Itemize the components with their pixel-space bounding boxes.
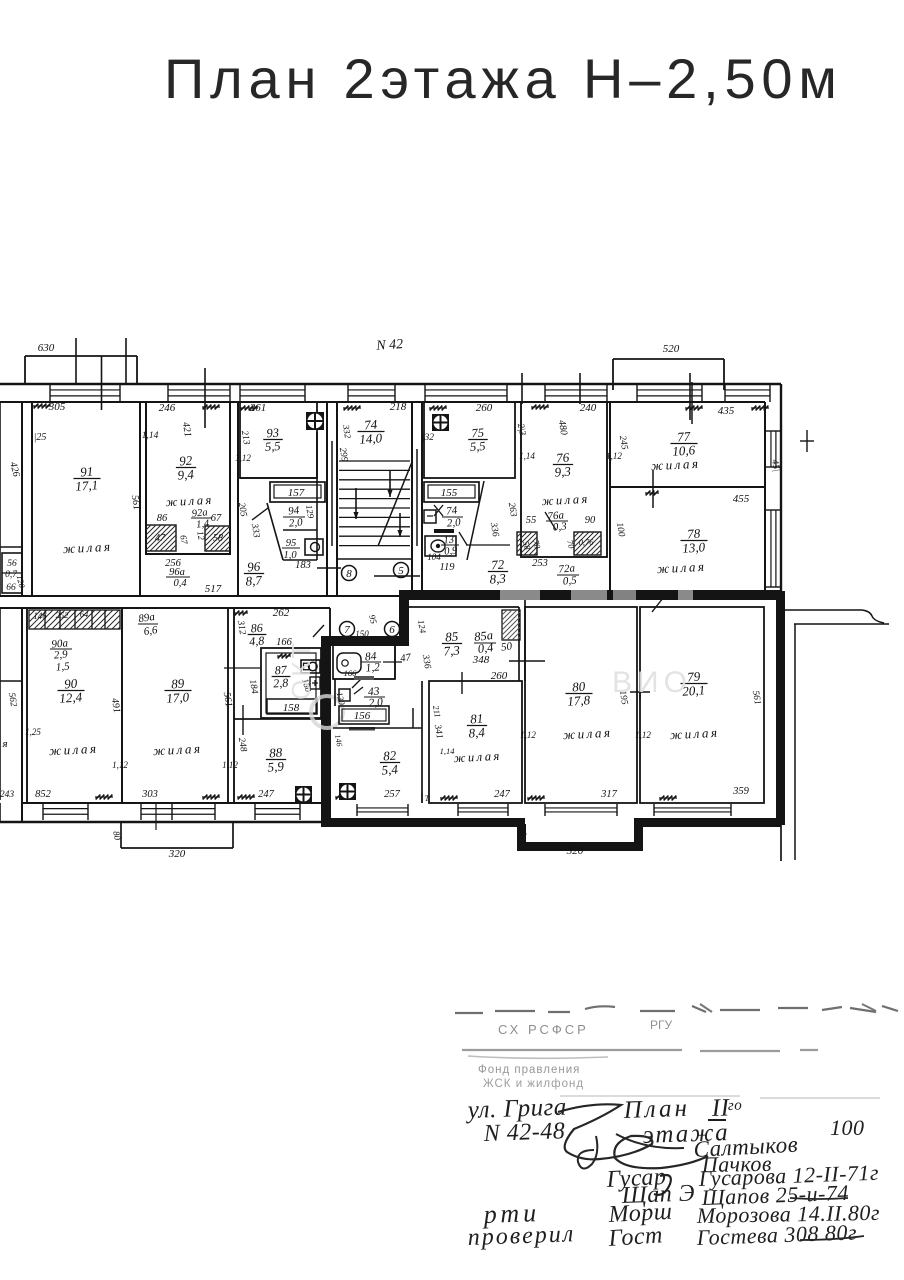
svg-text:ОКТ: ОКТ bbox=[286, 640, 316, 700]
svg-text:100: 100 bbox=[830, 1115, 865, 1140]
svg-text:5,5: 5,5 bbox=[469, 439, 486, 454]
svg-text:317: 317 bbox=[600, 789, 618, 800]
svg-text:320: 320 bbox=[566, 845, 584, 857]
svg-text:2,9: 2,9 bbox=[53, 648, 68, 661]
svg-text:435: 435 bbox=[718, 405, 735, 417]
svg-text:жилая: жилая bbox=[453, 749, 502, 765]
svg-text:67: 67 bbox=[211, 513, 222, 524]
svg-text:го: го bbox=[728, 1098, 743, 1114]
svg-text:517: 517 bbox=[205, 583, 222, 595]
svg-text:630: 630 bbox=[38, 342, 55, 354]
svg-text:155: 155 bbox=[441, 487, 458, 499]
svg-text:253: 253 bbox=[532, 558, 548, 569]
svg-text:156: 156 bbox=[354, 710, 371, 722]
svg-text:N 42: N 42 bbox=[375, 337, 404, 354]
svg-text:55: 55 bbox=[526, 515, 537, 526]
svg-text:86: 86 bbox=[157, 513, 168, 524]
svg-text:47: 47 bbox=[155, 533, 166, 544]
svg-text:ЖСК и жилфонд: ЖСК и жилфонд bbox=[483, 1078, 584, 1090]
svg-text:2,0: 2,0 bbox=[368, 696, 384, 709]
svg-text:1,12: 1,12 bbox=[112, 760, 128, 770]
svg-text:я: я bbox=[1, 738, 7, 750]
svg-text:359: 359 bbox=[732, 786, 750, 797]
svg-text:320: 320 bbox=[168, 848, 186, 860]
svg-text:64: 64 bbox=[80, 609, 89, 619]
svg-text:6: 6 bbox=[389, 624, 395, 636]
svg-text:247: 247 bbox=[494, 789, 511, 800]
svg-text:100: 100 bbox=[614, 522, 626, 538]
svg-text:2,0: 2,0 bbox=[446, 516, 461, 529]
svg-text:1,4: 1,4 bbox=[196, 518, 211, 530]
svg-text:4,8: 4,8 bbox=[249, 634, 265, 649]
svg-text:СХ РСФСР: СХ РСФСР bbox=[498, 1022, 589, 1037]
svg-text:7,3: 7,3 bbox=[443, 642, 461, 658]
svg-text:13,0: 13,0 bbox=[682, 539, 706, 556]
svg-text:проверил: проверил bbox=[467, 1221, 575, 1251]
svg-text:455: 455 bbox=[733, 493, 750, 505]
svg-text:0,3: 0,3 bbox=[552, 520, 567, 533]
svg-text:0,76: 0,76 bbox=[579, 537, 595, 547]
svg-text:1,5: 1,5 bbox=[55, 660, 70, 673]
svg-text:|32: |32 bbox=[422, 433, 434, 443]
svg-text:14,0: 14,0 bbox=[359, 430, 383, 447]
svg-text:129: 129 bbox=[304, 504, 316, 520]
svg-text:240: 240 bbox=[580, 402, 597, 414]
svg-text:8: 8 bbox=[346, 568, 352, 580]
svg-text:480: 480 bbox=[556, 419, 569, 436]
svg-text:17,1: 17,1 bbox=[75, 477, 99, 494]
svg-text:66: 66 bbox=[6, 583, 16, 593]
svg-text:1,25: 1,25 bbox=[25, 727, 41, 737]
svg-text:жилая: жилая bbox=[541, 492, 590, 508]
svg-text:336: 336 bbox=[420, 653, 433, 670]
svg-text:5,4: 5,4 bbox=[381, 761, 399, 777]
svg-text:260: 260 bbox=[476, 402, 493, 414]
svg-text:246: 246 bbox=[159, 402, 176, 414]
svg-text:67: 67 bbox=[178, 534, 189, 545]
svg-text:95: 95 bbox=[286, 538, 297, 549]
svg-text:562: 562 bbox=[6, 692, 18, 708]
svg-text:333: 333 bbox=[249, 522, 262, 539]
svg-text:жилая: жилая bbox=[563, 725, 613, 743]
svg-text:9,4: 9,4 bbox=[177, 466, 195, 482]
svg-text:243: 243 bbox=[0, 790, 14, 800]
svg-text:жилая: жилая bbox=[670, 725, 720, 743]
svg-text:30: 30 bbox=[517, 825, 529, 837]
svg-text:90: 90 bbox=[585, 515, 596, 526]
svg-text:491: 491 bbox=[109, 697, 122, 714]
svg-text:130: 130 bbox=[335, 691, 348, 706]
svg-text:5: 5 bbox=[398, 565, 404, 577]
svg-text:8,4: 8,4 bbox=[468, 724, 486, 740]
svg-text:70: 70 bbox=[565, 539, 577, 551]
svg-text:1,14: 1,14 bbox=[519, 451, 535, 461]
svg-text:119: 119 bbox=[440, 562, 456, 573]
svg-text:2,0: 2,0 bbox=[288, 516, 303, 529]
svg-text:520: 520 bbox=[663, 343, 680, 355]
svg-text:0,4: 0,4 bbox=[173, 578, 187, 589]
svg-text:336: 336 bbox=[488, 521, 501, 538]
svg-text:1,12: 1,12 bbox=[222, 760, 238, 770]
svg-text:183: 183 bbox=[295, 560, 311, 571]
svg-text:жилая: жилая bbox=[651, 456, 701, 474]
svg-text:Гост: Гост bbox=[607, 1222, 664, 1252]
svg-text:1,12: 1,12 bbox=[235, 453, 251, 463]
svg-text:263: 263 bbox=[506, 502, 518, 518]
svg-text:жилая: жилая bbox=[63, 539, 113, 557]
svg-text:1,12: 1,12 bbox=[606, 451, 622, 461]
svg-text:89а: 89а bbox=[138, 611, 157, 625]
svg-text:124: 124 bbox=[416, 619, 428, 635]
svg-text:8,7: 8,7 bbox=[245, 572, 263, 588]
svg-text:248: 248 bbox=[236, 737, 248, 753]
svg-text:Фонд правления: Фонд правления bbox=[478, 1064, 580, 1076]
svg-text:5,9: 5,9 bbox=[267, 758, 285, 774]
svg-text:58: 58 bbox=[213, 533, 223, 544]
svg-text:146: 146 bbox=[333, 734, 344, 748]
svg-text:218: 218 bbox=[390, 401, 407, 413]
svg-text:жилая: жилая bbox=[657, 559, 707, 577]
svg-text:211: 211 bbox=[431, 705, 443, 719]
svg-text:1,12: 1,12 bbox=[635, 730, 651, 740]
svg-text:303: 303 bbox=[141, 789, 158, 800]
svg-text:146: 146 bbox=[33, 611, 47, 621]
svg-text:47: 47 bbox=[400, 652, 413, 664]
svg-text:ВИО: ВИО bbox=[612, 666, 692, 699]
svg-text:жилая: жилая bbox=[49, 741, 99, 759]
svg-text:96а: 96а bbox=[169, 567, 185, 578]
svg-text:Гостева 308 80г: Гостева 308 80г bbox=[695, 1219, 857, 1250]
svg-text:157: 157 bbox=[288, 487, 305, 499]
svg-text:17,0: 17,0 bbox=[166, 689, 190, 706]
svg-text:1,14: 1,14 bbox=[440, 746, 456, 756]
svg-text:1,12: 1,12 bbox=[520, 730, 536, 740]
svg-text:341: 341 bbox=[432, 723, 444, 740]
svg-text:158: 158 bbox=[283, 702, 300, 714]
svg-text:12,4: 12,4 bbox=[59, 689, 83, 706]
svg-text:|25: |25 bbox=[34, 432, 47, 443]
svg-text:9,3: 9,3 bbox=[554, 463, 572, 479]
svg-text:7: 7 bbox=[344, 624, 350, 636]
svg-text:РГУ: РГУ bbox=[650, 1018, 673, 1032]
svg-text:0,5: 0,5 bbox=[562, 574, 577, 587]
svg-text:1,14: 1,14 bbox=[142, 431, 159, 441]
svg-text:184: 184 bbox=[247, 679, 259, 695]
svg-text:421: 421 bbox=[180, 421, 193, 438]
svg-text:561: 561 bbox=[221, 691, 234, 708]
svg-text:94: 94 bbox=[288, 505, 301, 518]
svg-text:45|: 45| bbox=[769, 459, 781, 473]
svg-text:561: 561 bbox=[750, 690, 762, 706]
svg-text:N 42-48: N 42-48 bbox=[482, 1118, 565, 1147]
svg-text:561: 561 bbox=[129, 494, 142, 511]
svg-text:План: План bbox=[622, 1095, 690, 1124]
svg-text:56: 56 bbox=[7, 559, 17, 569]
svg-text:17,8: 17,8 bbox=[567, 692, 591, 709]
svg-text:247: 247 bbox=[258, 789, 275, 800]
svg-text:852: 852 bbox=[35, 789, 52, 800]
svg-text:104: 104 bbox=[427, 552, 441, 562]
svg-text:426: 426 bbox=[7, 461, 21, 478]
svg-text:8,3: 8,3 bbox=[489, 570, 507, 586]
svg-text:332: 332 bbox=[341, 423, 353, 440]
svg-text:312: 312 bbox=[235, 619, 248, 636]
svg-text:245: 245 bbox=[617, 435, 629, 451]
svg-text:5,5: 5,5 bbox=[264, 439, 281, 454]
svg-text:50: 50 bbox=[500, 640, 513, 653]
svg-text:262: 262 bbox=[273, 607, 290, 619]
svg-text:348: 348 bbox=[472, 654, 490, 666]
svg-text:120: 120 bbox=[15, 574, 28, 589]
svg-text:252: 252 bbox=[56, 610, 70, 620]
svg-text:305: 305 bbox=[48, 401, 66, 413]
svg-text:257: 257 bbox=[384, 789, 401, 800]
svg-text:6,6: 6,6 bbox=[143, 624, 159, 638]
svg-text:жилая: жилая bbox=[153, 741, 203, 759]
svg-text:95: 95 bbox=[367, 614, 379, 626]
svg-text:1,2: 1,2 bbox=[365, 661, 381, 674]
svg-text:74: 74 bbox=[446, 505, 459, 518]
